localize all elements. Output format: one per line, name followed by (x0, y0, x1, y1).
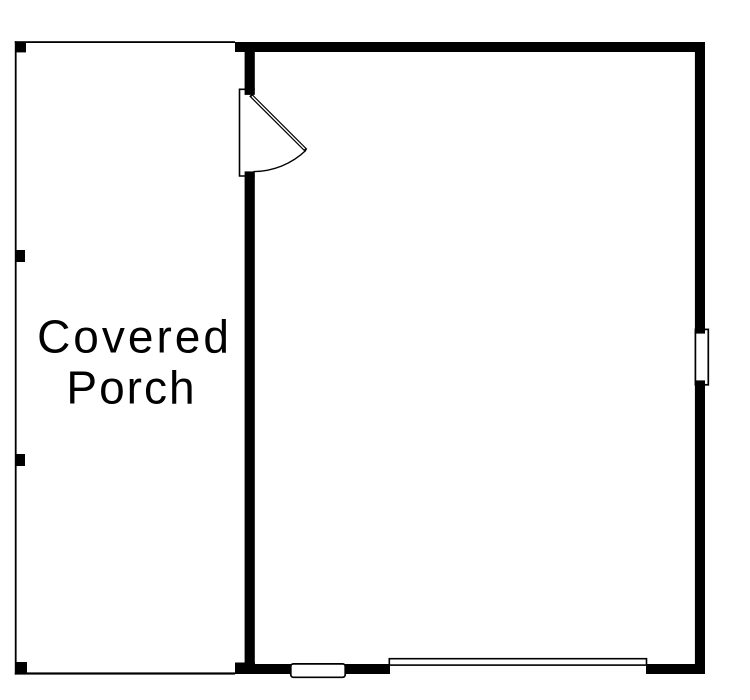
svg-text:Porch: Porch (66, 361, 196, 413)
svg-text:Covered: Covered (37, 310, 232, 362)
